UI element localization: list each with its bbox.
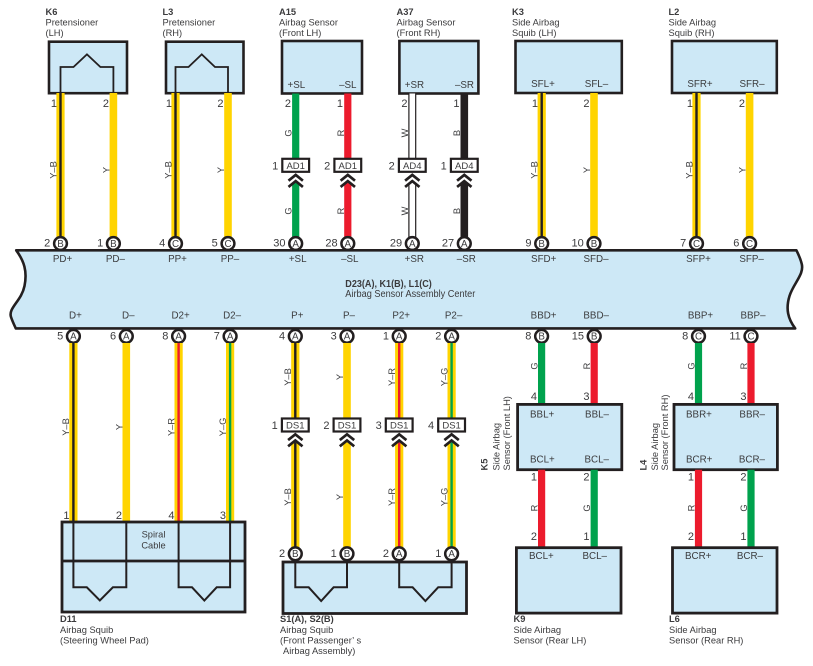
svg-text:7: 7 <box>680 238 686 250</box>
svg-text:AD4: AD4 <box>403 161 421 172</box>
svg-text:BCL+: BCL+ <box>530 455 555 466</box>
svg-text:K3: K3 <box>512 7 524 17</box>
svg-text:R: R <box>582 362 592 369</box>
svg-text:Sensor (Rear LH): Sensor (Rear LH) <box>514 636 587 646</box>
svg-text:+SL: +SL <box>289 254 307 265</box>
svg-text:R: R <box>336 207 346 214</box>
svg-text:2: 2 <box>279 548 285 560</box>
svg-text:Y: Y <box>101 167 111 173</box>
svg-text:L2: L2 <box>669 7 680 17</box>
svg-text:2: 2 <box>583 472 589 484</box>
svg-text:S1(A), S2(B): S1(A), S2(B) <box>280 614 334 624</box>
svg-text:Y–B: Y–B <box>530 161 540 179</box>
svg-text:29: 29 <box>390 238 402 250</box>
svg-text:4: 4 <box>688 391 694 403</box>
svg-text:2: 2 <box>116 510 122 522</box>
svg-text:5: 5 <box>57 331 63 343</box>
svg-text:6: 6 <box>110 331 116 343</box>
svg-text:(Front Passenger’ s: (Front Passenger’ s <box>280 636 361 646</box>
svg-text:B: B <box>591 332 598 343</box>
svg-text:B: B <box>452 208 462 214</box>
svg-text:2: 2 <box>583 98 589 110</box>
svg-text:2: 2 <box>401 98 407 110</box>
svg-text:PP–: PP– <box>221 254 240 265</box>
svg-text:Y–B: Y–B <box>48 161 58 179</box>
svg-text:Sensor (Front RH): Sensor (Front RH) <box>660 395 670 471</box>
svg-text:+SL: +SL <box>288 80 306 91</box>
svg-text:A: A <box>396 332 403 343</box>
svg-text:B: B <box>591 239 598 250</box>
svg-text:C: C <box>746 239 753 250</box>
svg-text:Airbag Assembly): Airbag Assembly) <box>283 646 355 656</box>
svg-text:G: G <box>529 362 539 369</box>
svg-text:Y: Y <box>114 424 124 430</box>
svg-text:2: 2 <box>739 98 745 110</box>
svg-text:A: A <box>292 239 299 250</box>
svg-text:6: 6 <box>733 238 739 250</box>
svg-text:G: G <box>284 207 294 214</box>
svg-text:–SR: –SR <box>457 254 476 265</box>
svg-text:G: G <box>739 504 749 511</box>
svg-text:SFP+: SFP+ <box>686 254 711 265</box>
svg-text:SFL+: SFL+ <box>531 79 555 90</box>
svg-text:SFD–: SFD– <box>583 254 609 265</box>
svg-text:30: 30 <box>273 238 285 250</box>
svg-text:2: 2 <box>285 98 291 110</box>
svg-text:Y–B: Y–B <box>61 418 71 436</box>
svg-text:3: 3 <box>740 391 746 403</box>
svg-text:A: A <box>461 239 468 250</box>
svg-text:1: 1 <box>435 548 441 560</box>
svg-text:Y–B: Y–B <box>283 368 293 386</box>
svg-text:A: A <box>345 239 352 250</box>
svg-text:A: A <box>70 332 77 343</box>
svg-text:4: 4 <box>279 331 285 343</box>
svg-text:+SR: +SR <box>405 80 424 91</box>
svg-text:5: 5 <box>212 238 218 250</box>
svg-text:PD–: PD– <box>106 254 126 265</box>
svg-text:Y: Y <box>335 374 345 380</box>
svg-text:2: 2 <box>44 238 50 250</box>
svg-text:B: B <box>110 239 117 250</box>
svg-text:A: A <box>292 332 299 343</box>
svg-text:(Front RH): (Front RH) <box>397 28 441 38</box>
svg-text:SFR–: SFR– <box>739 79 765 90</box>
svg-text:DS1: DS1 <box>390 421 408 432</box>
svg-text:A15: A15 <box>279 7 296 17</box>
svg-text:D–: D– <box>122 311 135 322</box>
svg-text:1: 1 <box>97 238 103 250</box>
svg-text:Cable: Cable <box>141 541 165 551</box>
svg-text:(RH): (RH) <box>163 28 183 38</box>
svg-text:1: 1 <box>688 472 694 484</box>
svg-text:7: 7 <box>214 331 220 343</box>
svg-text:1: 1 <box>166 98 172 110</box>
svg-text:L4: L4 <box>639 459 649 471</box>
svg-text:A: A <box>344 332 351 343</box>
svg-text:2: 2 <box>531 531 537 543</box>
svg-text:G: G <box>582 504 592 511</box>
svg-text:Airbag Sensor: Airbag Sensor <box>279 18 338 28</box>
svg-text:Side Airbag: Side Airbag <box>669 18 717 28</box>
svg-text:R: R <box>686 504 696 511</box>
svg-text:G: G <box>686 362 696 369</box>
svg-text:C: C <box>224 239 231 250</box>
svg-text:D2+: D2+ <box>171 311 190 322</box>
svg-text:SFL–: SFL– <box>585 79 609 90</box>
svg-text:–SL: –SL <box>339 80 357 91</box>
svg-text:A: A <box>448 332 455 343</box>
svg-text:D+: D+ <box>69 311 82 322</box>
svg-text:(Front LH): (Front LH) <box>279 28 321 38</box>
svg-text:Y–G: Y–G <box>439 368 449 387</box>
svg-text:BCR–: BCR– <box>737 551 764 562</box>
svg-text:4: 4 <box>168 510 174 522</box>
svg-text:BBL+: BBL+ <box>530 410 555 421</box>
svg-text:27: 27 <box>442 238 454 250</box>
svg-text:Sensor (Front LH): Sensor (Front LH) <box>502 396 512 470</box>
svg-text:Squib (RH): Squib (RH) <box>669 28 715 38</box>
svg-text:1: 1 <box>272 160 278 172</box>
svg-text:1: 1 <box>532 98 538 110</box>
svg-text:BCR–: BCR– <box>739 455 766 466</box>
svg-text:P+: P+ <box>291 311 304 322</box>
svg-text:P2–: P2– <box>445 311 463 322</box>
svg-text:D11: D11 <box>60 614 77 624</box>
svg-text:Side Airbag: Side Airbag <box>669 625 717 635</box>
svg-text:Y: Y <box>582 167 592 173</box>
svg-text:Spiral: Spiral <box>142 530 166 540</box>
svg-text:Pretensioner: Pretensioner <box>46 18 99 28</box>
svg-text:Airbag Sensor: Airbag Sensor <box>397 18 456 28</box>
svg-text:SFD+: SFD+ <box>531 254 557 265</box>
svg-text:L3: L3 <box>163 7 174 17</box>
svg-text:A: A <box>175 332 182 343</box>
svg-text:Side Airbag: Side Airbag <box>512 18 560 28</box>
svg-text:+SR: +SR <box>405 254 424 265</box>
svg-text:Y–G: Y–G <box>218 418 228 437</box>
svg-text:2: 2 <box>435 331 441 343</box>
svg-text:2: 2 <box>217 98 223 110</box>
svg-text:2: 2 <box>383 548 389 560</box>
svg-text:P–: P– <box>343 311 356 322</box>
svg-text:Squib (LH): Squib (LH) <box>512 28 556 38</box>
svg-text:3: 3 <box>220 510 226 522</box>
svg-text:BCL–: BCL– <box>584 455 609 466</box>
svg-text:AD4: AD4 <box>455 161 473 172</box>
svg-text:BBR+: BBR+ <box>686 410 712 421</box>
svg-text:AD1: AD1 <box>339 161 357 172</box>
svg-text:R: R <box>336 129 346 136</box>
svg-text:–SL: –SL <box>341 254 359 265</box>
svg-text:BBL–: BBL– <box>585 410 610 421</box>
svg-text:G: G <box>284 129 294 136</box>
svg-text:Side Airbag: Side Airbag <box>514 625 562 635</box>
svg-text:2: 2 <box>324 160 330 172</box>
svg-text:3: 3 <box>331 331 337 343</box>
svg-text:2: 2 <box>688 531 694 543</box>
svg-text:SFP–: SFP– <box>739 254 764 265</box>
svg-text:8: 8 <box>525 331 531 343</box>
svg-text:1: 1 <box>583 531 589 543</box>
svg-text:2: 2 <box>740 472 746 484</box>
svg-text:28: 28 <box>325 238 337 250</box>
svg-text:–SR: –SR <box>455 80 474 91</box>
svg-text:4: 4 <box>428 420 434 432</box>
svg-text:Y–B: Y–B <box>283 488 293 506</box>
svg-text:9: 9 <box>525 238 531 250</box>
svg-text:3: 3 <box>583 391 589 403</box>
svg-text:Sensor (Rear RH): Sensor (Rear RH) <box>669 636 743 646</box>
svg-text:1: 1 <box>331 548 337 560</box>
svg-text:C: C <box>695 332 702 343</box>
svg-text:8: 8 <box>162 331 168 343</box>
svg-text:1: 1 <box>272 420 278 432</box>
svg-text:W: W <box>400 206 410 215</box>
svg-text:PD+: PD+ <box>53 254 73 265</box>
svg-text:BBD+: BBD+ <box>531 311 557 322</box>
svg-text:B: B <box>344 549 351 560</box>
svg-text:BBP–: BBP– <box>740 311 766 322</box>
svg-text:(Steering Wheel Pad): (Steering Wheel Pad) <box>60 636 149 646</box>
svg-text:11: 11 <box>729 331 740 343</box>
svg-text:Side Airbag: Side Airbag <box>650 423 660 471</box>
svg-text:Y: Y <box>216 167 226 173</box>
svg-text:C: C <box>172 239 179 250</box>
svg-text:B: B <box>538 332 545 343</box>
svg-text:Airbag Squib: Airbag Squib <box>60 625 113 635</box>
svg-text:A: A <box>123 332 130 343</box>
svg-text:1: 1 <box>687 98 693 110</box>
svg-text:Airbag Sensor Assembly Center: Airbag Sensor Assembly Center <box>345 289 476 300</box>
svg-text:3: 3 <box>376 420 382 432</box>
svg-text:BBR–: BBR– <box>739 410 765 421</box>
svg-text:DS1: DS1 <box>338 421 356 432</box>
svg-text:B: B <box>452 130 462 136</box>
svg-text:A: A <box>409 239 416 250</box>
svg-text:(LH): (LH) <box>46 28 64 38</box>
svg-text:W: W <box>400 128 410 137</box>
svg-text:2: 2 <box>323 420 329 432</box>
svg-text:1: 1 <box>51 98 57 110</box>
svg-text:4: 4 <box>159 238 165 250</box>
svg-text:Y–B: Y–B <box>684 161 694 179</box>
svg-text:Y–G: Y–G <box>439 488 449 507</box>
svg-text:2: 2 <box>103 98 109 110</box>
svg-text:Airbag Squib: Airbag Squib <box>280 625 333 635</box>
svg-text:SFR+: SFR+ <box>687 79 713 90</box>
svg-text:15: 15 <box>572 331 584 343</box>
svg-text:1: 1 <box>740 531 746 543</box>
svg-text:A: A <box>227 332 234 343</box>
svg-text:Y: Y <box>737 167 747 173</box>
svg-text:1: 1 <box>441 160 447 172</box>
svg-text:8: 8 <box>682 331 688 343</box>
svg-text:Y–R: Y–R <box>387 488 397 506</box>
svg-text:A37: A37 <box>397 7 414 17</box>
svg-text:1: 1 <box>453 98 459 110</box>
svg-text:A: A <box>396 549 403 560</box>
svg-text:B: B <box>57 239 64 250</box>
svg-text:P2+: P2+ <box>392 311 410 322</box>
svg-text:BCR+: BCR+ <box>686 455 713 466</box>
svg-text:B: B <box>292 549 299 560</box>
svg-text:Y–R: Y–R <box>387 368 397 386</box>
svg-text:Y: Y <box>335 494 345 500</box>
svg-text:K6: K6 <box>46 7 58 17</box>
svg-text:BCL+: BCL+ <box>529 551 554 562</box>
svg-text:PP+: PP+ <box>168 254 187 265</box>
svg-text:R: R <box>739 362 749 369</box>
svg-text:Y–B: Y–B <box>163 161 173 179</box>
svg-text:K9: K9 <box>514 614 526 624</box>
svg-text:BBP+: BBP+ <box>688 311 714 322</box>
svg-text:C: C <box>693 239 700 250</box>
svg-text:4: 4 <box>531 391 537 403</box>
svg-text:K5: K5 <box>480 459 490 471</box>
svg-text:1: 1 <box>531 472 537 484</box>
svg-text:R: R <box>529 504 539 511</box>
svg-text:2: 2 <box>389 160 395 172</box>
svg-text:Y–R: Y–R <box>166 418 176 436</box>
svg-text:1: 1 <box>63 510 69 522</box>
svg-text:BCL–: BCL– <box>582 551 607 562</box>
svg-text:L6: L6 <box>669 614 680 624</box>
svg-text:Pretensioner: Pretensioner <box>163 18 216 28</box>
svg-text:D2–: D2– <box>223 311 242 322</box>
svg-text:Side Airbag: Side Airbag <box>492 423 502 471</box>
svg-text:BBD–: BBD– <box>583 311 609 322</box>
svg-text:1: 1 <box>383 331 389 343</box>
svg-text:A: A <box>448 549 455 560</box>
svg-text:C: C <box>747 332 754 343</box>
svg-text:1: 1 <box>337 98 343 110</box>
svg-text:B: B <box>538 239 545 250</box>
svg-text:10: 10 <box>572 238 584 250</box>
svg-text:DS1: DS1 <box>442 421 460 432</box>
svg-text:DS1: DS1 <box>286 421 304 432</box>
svg-text:BCR+: BCR+ <box>685 551 712 562</box>
svg-text:AD1: AD1 <box>286 161 304 172</box>
